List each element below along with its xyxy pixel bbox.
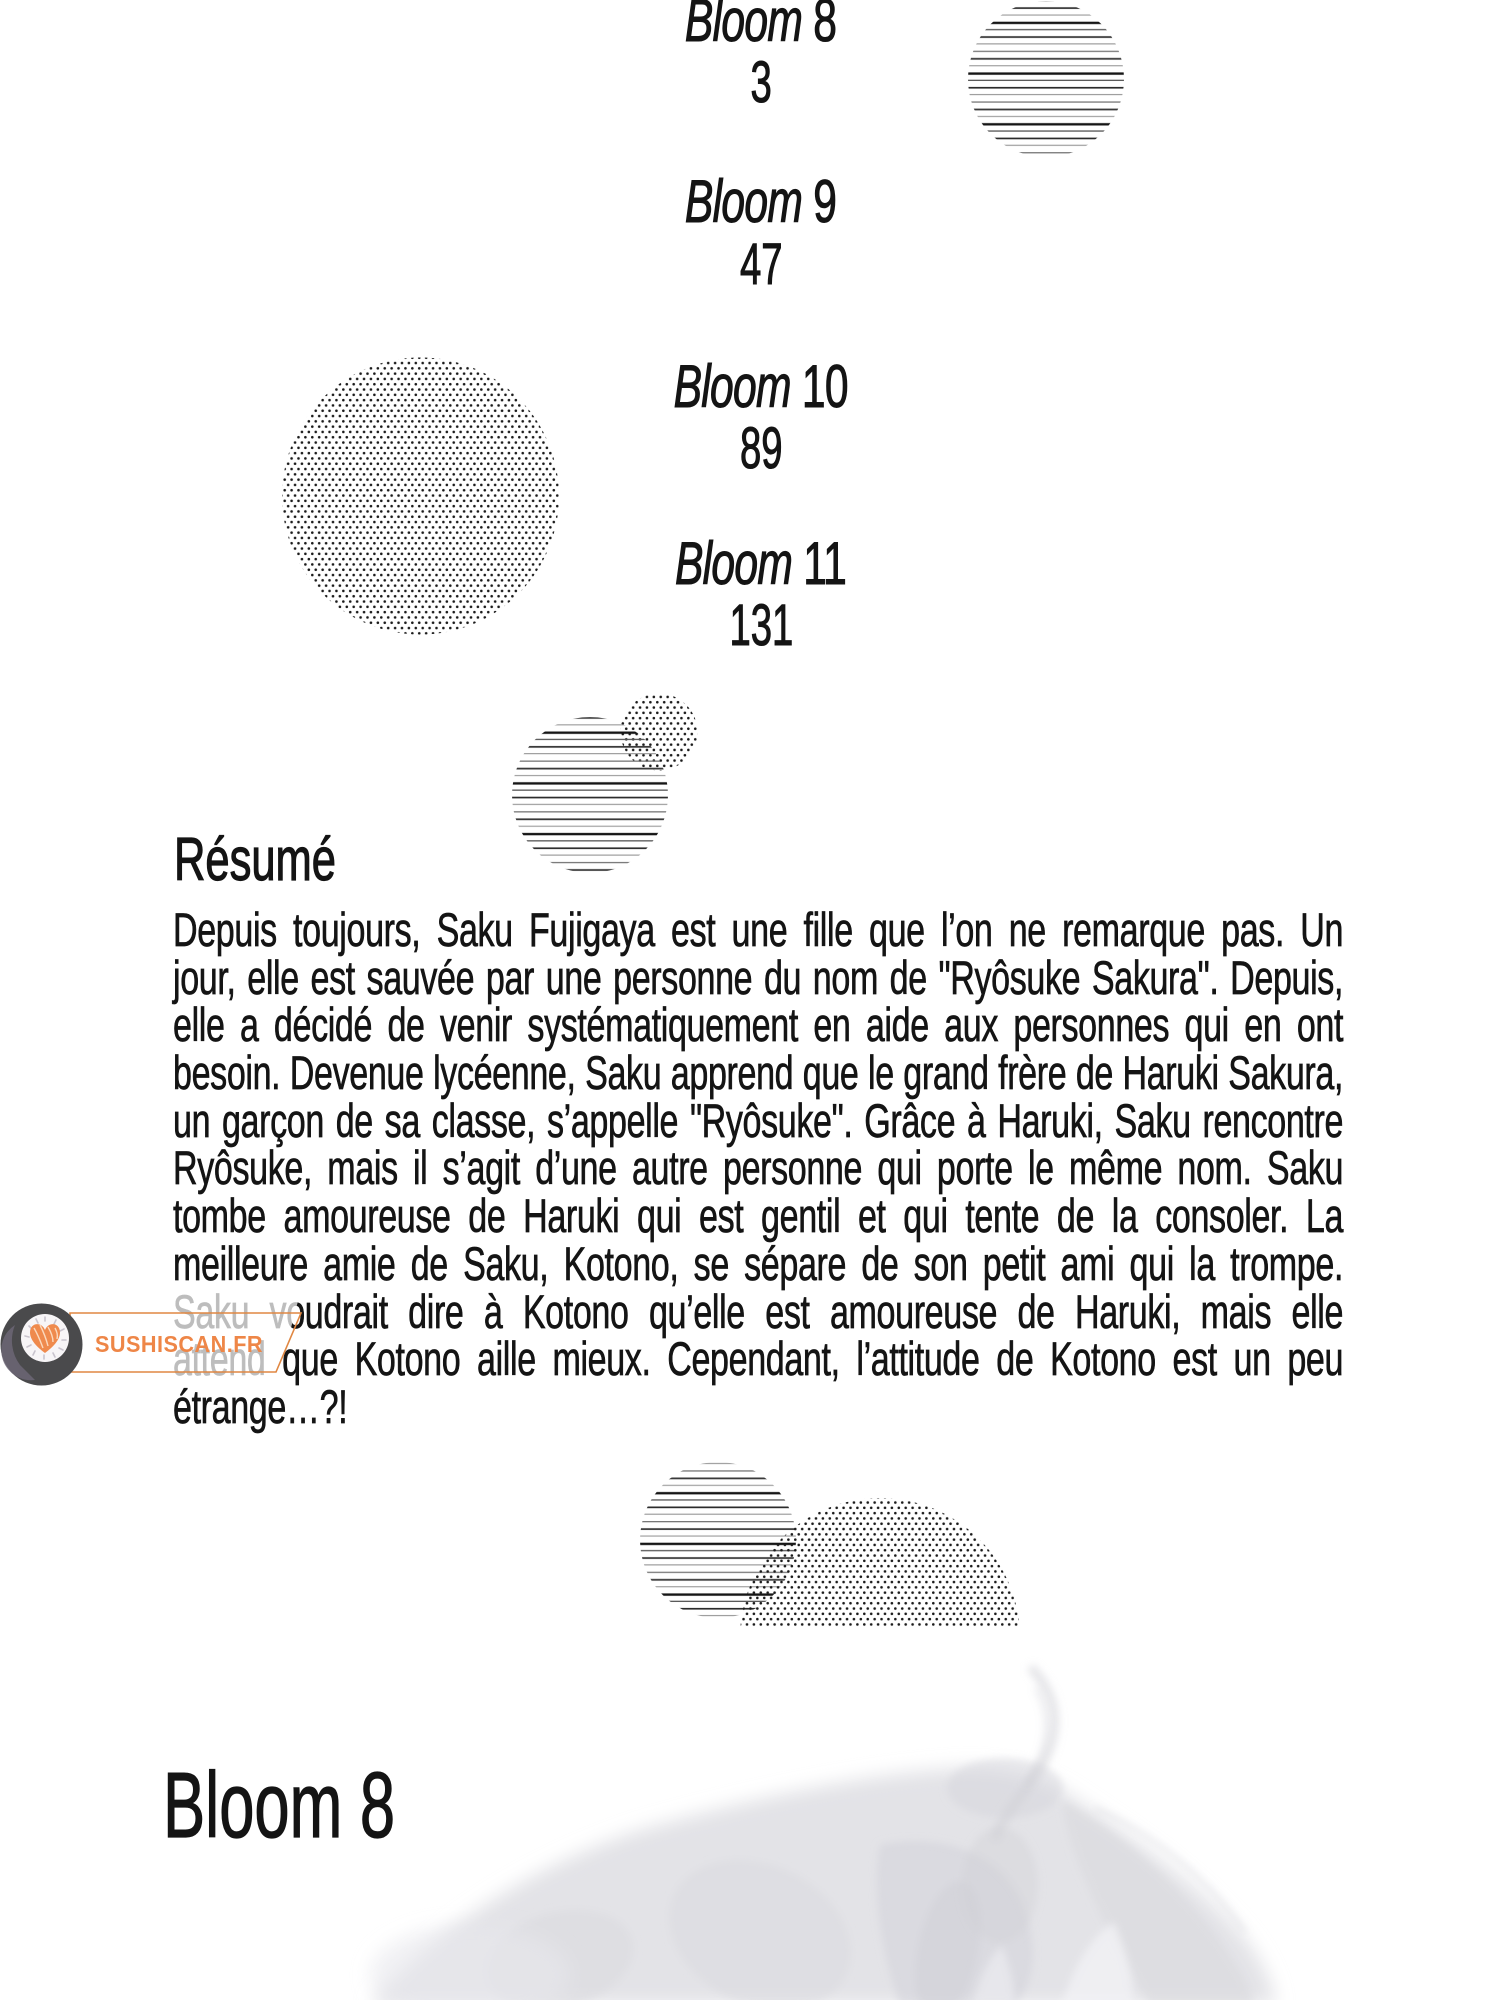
svg-text:SUSHISCAN.FR: SUSHISCAN.FR: [95, 1331, 263, 1357]
